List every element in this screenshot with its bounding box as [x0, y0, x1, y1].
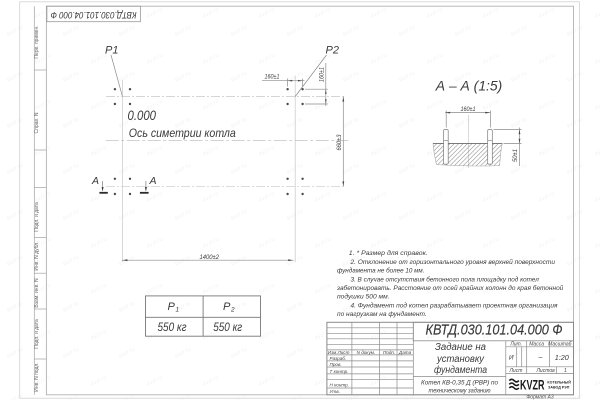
svg-text:Задание на: Задание на: [435, 342, 486, 353]
svg-text:N докум.: N докум.: [357, 350, 376, 355]
svg-text:160±1: 160±1: [319, 67, 326, 82]
svg-text:160±1: 160±1: [265, 74, 280, 81]
svg-text:50±1: 50±1: [512, 149, 519, 162]
svg-text:установку: установку: [436, 354, 485, 365]
svg-text:фундамента: фундамента: [434, 364, 487, 376]
svg-text:4. Фундамент под котел разраба: 4. Фундамент под котел разрабатывает про…: [351, 301, 558, 309]
svg-text:Ось симетрии котла: Ось симетрии котла: [129, 126, 236, 140]
svg-text:ЗАВОД РЭП: ЗАВОД РЭП: [548, 385, 570, 389]
svg-text:техническому заданию: техническому заданию: [429, 389, 491, 395]
svg-text:фундамента не более 10 мм.: фундамента не более 10 мм.: [337, 267, 425, 275]
svg-text:А: А: [91, 175, 99, 187]
svg-text:Инв. N дубл.: Инв. N дубл.: [34, 241, 40, 270]
svg-text:P1: P1: [105, 45, 118, 57]
svg-text:Лит.: Лит.: [509, 341, 522, 347]
svg-text:Дата: Дата: [398, 350, 412, 355]
svg-text:Перв. примен.: Перв. примен.: [34, 25, 40, 58]
svg-text:Подп.: Подп.: [383, 350, 395, 355]
svg-text:Инв. N подл.: Инв. N подл.: [34, 362, 40, 391]
svg-text:P2: P2: [326, 45, 339, 57]
svg-text:Т контр.: Т контр.: [330, 369, 349, 374]
svg-text:550 кг: 550 кг: [213, 322, 242, 334]
svg-text:Н контр.: Н контр.: [330, 383, 349, 388]
svg-text:КВТД.030.101.04.000 Ф: КВТД.030.101.04.000 Ф: [426, 323, 563, 339]
svg-text:Взам. инв. N: Взам. инв. N: [34, 278, 40, 308]
svg-text:160±1: 160±1: [461, 106, 476, 113]
svg-text:1:20: 1:20: [555, 353, 569, 362]
svg-text:по нагрузкам на фундамент.: по нагрузкам на фундамент.: [337, 310, 427, 318]
svg-text:2: 2: [230, 307, 235, 314]
svg-text:0.000: 0.000: [128, 107, 157, 123]
svg-text:660±3: 660±3: [336, 134, 343, 150]
svg-text:Подп. и дата: Подп. и дата: [34, 202, 40, 232]
svg-text:КОТЕЛЬНЫЙ: КОТЕЛЬНЫЙ: [547, 380, 571, 384]
svg-text:KVZR: KVZR: [520, 378, 545, 393]
svg-text:Разраб.: Разраб.: [330, 356, 347, 361]
svg-text:А: А: [149, 175, 157, 187]
svg-text:Масштаб: Масштаб: [548, 341, 572, 347]
svg-text:1: 1: [564, 368, 567, 374]
svg-text:Масса: Масса: [529, 341, 544, 347]
svg-text:Котел КВ-0,35 Д (РВР) по: Котел КВ-0,35 Д (РВР) по: [421, 381, 499, 387]
svg-text:550 кг: 550 кг: [158, 322, 187, 334]
svg-text:забетонировать. Расстояние от: забетонировать. Расстояние от осей крайн…: [336, 284, 564, 292]
svg-text:Пров.: Пров.: [330, 362, 342, 367]
svg-text:И: И: [509, 355, 514, 362]
svg-text:Утв.: Утв.: [330, 389, 340, 394]
svg-text:Справ. N: Справ. N: [34, 112, 40, 133]
svg-text:А – А (1:5): А – А (1:5): [435, 77, 502, 93]
svg-text:P: P: [168, 301, 176, 313]
svg-text:P: P: [223, 301, 231, 313]
svg-text:2. Отклонение от горизонтально: 2. Отклонение от горизонтального уровня …: [350, 258, 556, 266]
svg-text:Листов: Листов: [536, 368, 556, 374]
svg-text:подушки 500 мм.: подушки 500 мм.: [337, 293, 390, 301]
svg-text:1: 1: [176, 307, 180, 314]
svg-text:1. * Размер для справок.: 1. * Размер для справок.: [349, 249, 428, 257]
svg-text:3. В случае отсутствия бетонно: 3. В случае отсутствия бетонного пола пл…: [351, 275, 540, 283]
svg-text:1400±2: 1400±2: [200, 254, 220, 261]
svg-text:Подп. и дата: Подп. и дата: [34, 319, 40, 349]
svg-text:Формат А3: Формат А3: [526, 395, 554, 400]
svg-text:–: –: [538, 354, 543, 361]
svg-text:КВТД.030.101.04.000 Ф: КВТД.030.101.04.000 Ф: [51, 10, 137, 20]
svg-text:Изм.Лист: Изм.Лист: [328, 350, 350, 355]
svg-text:Лист: Лист: [509, 368, 523, 374]
